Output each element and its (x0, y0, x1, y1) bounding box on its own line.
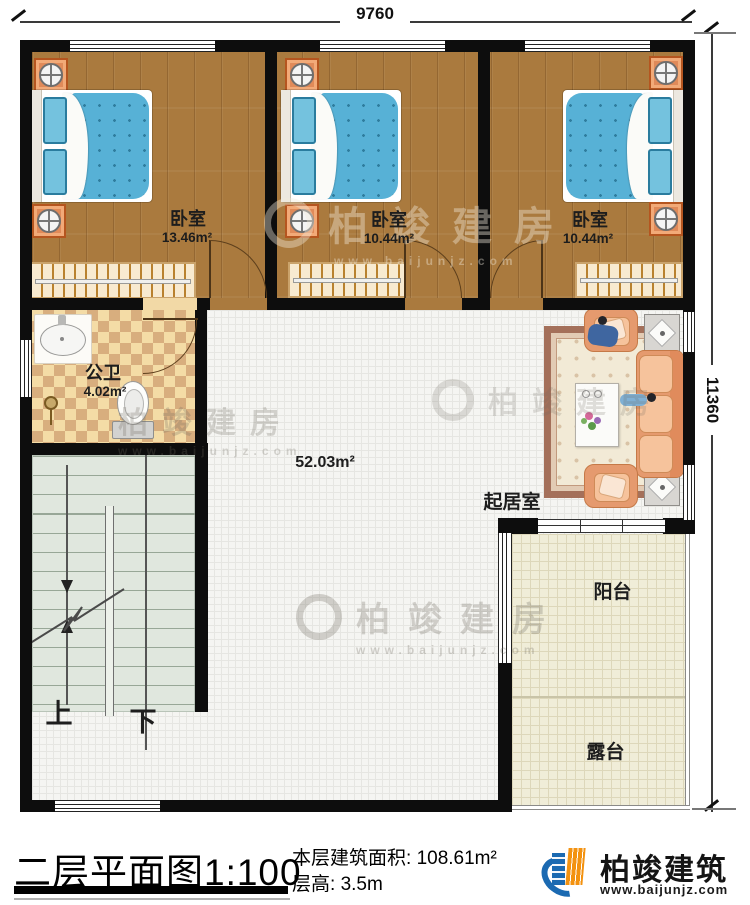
lamp-icon (39, 63, 63, 87)
title-underline-thin (14, 898, 290, 900)
door-opening (143, 298, 197, 310)
bed (32, 90, 152, 202)
wall (195, 455, 208, 712)
lamp-icon (290, 63, 314, 87)
window (20, 340, 32, 397)
bed-pillow (292, 97, 316, 144)
balcony-terrace-divider (512, 696, 686, 698)
bed-pillow (648, 149, 672, 195)
floor-area-line: 本层建筑面积: 108.61m² (292, 843, 497, 870)
door-opening (405, 298, 462, 310)
flower-icon (588, 422, 596, 430)
bed-pillow (648, 97, 672, 144)
room-label-balcony: 阳台 (570, 583, 655, 603)
window (683, 312, 695, 352)
person-head (647, 393, 656, 402)
terrace-bottom-parapet (512, 805, 690, 810)
headboard (673, 90, 683, 202)
room-area-bedroom1: 13.46m² (132, 231, 242, 245)
lamp-icon (654, 207, 678, 231)
sofa-cushion (639, 355, 673, 393)
wall (683, 40, 695, 533)
table-lamp-dot (660, 331, 665, 336)
room-label-bedroom3: 卧室 (535, 211, 645, 230)
room-label-bedroom1: 卧室 (133, 210, 243, 229)
bed (563, 90, 683, 202)
room-area-bedroom2: 10.44m² (334, 232, 444, 246)
armchair (584, 464, 638, 508)
stair-break-line (22, 555, 142, 655)
sofa (636, 350, 684, 478)
wall (478, 40, 490, 310)
nightstand (32, 204, 66, 238)
window (683, 465, 695, 520)
logo-building-orange (565, 848, 585, 885)
floor-area-value: 108.61m² (417, 848, 497, 869)
dimension-extension-line (694, 32, 736, 34)
cup-icon (582, 390, 590, 398)
nightstand (285, 204, 319, 238)
dimension-extension-line (692, 808, 736, 810)
room-label-bathroom: 公卫 (48, 364, 158, 383)
floor-height-label: 层高: (292, 874, 335, 895)
room-area-hall: 52.03m² (270, 455, 380, 472)
stairs-down-label: 下 (126, 708, 160, 736)
sink-faucet-icon (58, 315, 66, 325)
room-area-bedroom3: 10.44m² (533, 232, 643, 246)
nightstand (649, 202, 683, 236)
bed (281, 90, 401, 202)
window (498, 533, 512, 663)
bed-pillow (292, 149, 316, 195)
wall (543, 298, 695, 310)
nightstand (34, 58, 68, 92)
window (525, 40, 650, 52)
room-label-bedroom2: 卧室 (334, 211, 444, 230)
sink-drain-icon (60, 337, 64, 341)
wall (20, 40, 32, 812)
wall (462, 298, 490, 310)
lamp-icon (654, 61, 678, 85)
logo-building-blue (552, 853, 565, 885)
lamp-table (644, 314, 680, 352)
dimension-tick-icon (11, 9, 26, 22)
floor-plan-canvas: 上 下 (0, 0, 750, 905)
person-body (620, 394, 647, 406)
sofa-cushion (639, 435, 673, 473)
brand-logo-icon (540, 845, 594, 899)
floor-area-label: 本层建筑面积: (292, 848, 411, 869)
title-underline-thick (14, 886, 288, 894)
stairs-up-label: 上 (42, 700, 76, 728)
wall (267, 298, 405, 310)
terrace-right-parapet (685, 534, 690, 810)
lamp-icon (290, 209, 314, 233)
wardrobe (288, 262, 406, 298)
dimension-tick-icon (681, 9, 696, 22)
cup-icon (594, 390, 602, 398)
window (55, 800, 160, 812)
nightstand (285, 58, 319, 92)
headboard (281, 90, 291, 202)
sliding-door (538, 519, 665, 533)
window (70, 40, 215, 52)
wall (20, 298, 143, 310)
balcony-floor (512, 534, 686, 698)
dimension-top-value: 9760 (340, 4, 410, 24)
bed-pillow (43, 149, 67, 195)
wardrobe (30, 262, 196, 299)
table-lamp-dot (660, 485, 665, 490)
room-area-bathroom: 4.02m² (50, 385, 160, 399)
person-body (587, 323, 620, 348)
wardrobe (575, 262, 683, 298)
bed-pillow (43, 97, 67, 144)
lamp-icon (37, 209, 61, 233)
person-figure (620, 390, 658, 406)
room-label-living-room: 起居室 (467, 493, 557, 513)
wall (498, 663, 512, 812)
wall (663, 518, 695, 534)
wall (20, 443, 208, 455)
door-opening (490, 298, 543, 310)
wall (498, 518, 538, 534)
person-figure (588, 316, 618, 346)
wall (265, 40, 277, 310)
brand-website: www.baijunjz.com (600, 882, 728, 897)
room-label-terrace: 露台 (563, 743, 648, 763)
floor-height-line: 层高: 3.5m (292, 869, 383, 896)
nightstand (649, 56, 683, 90)
floor-drain-stem (50, 409, 52, 425)
headboard (32, 90, 42, 202)
dimension-right-value: 11360 (702, 365, 722, 435)
wall (197, 298, 210, 310)
door-opening (210, 298, 267, 310)
flower-icon (581, 418, 587, 424)
floor-height-value: 3.5m (341, 874, 383, 895)
wall (195, 310, 207, 455)
stair-down-guide-line (145, 447, 147, 750)
window (320, 40, 445, 52)
stair-landing-treads (33, 456, 196, 514)
